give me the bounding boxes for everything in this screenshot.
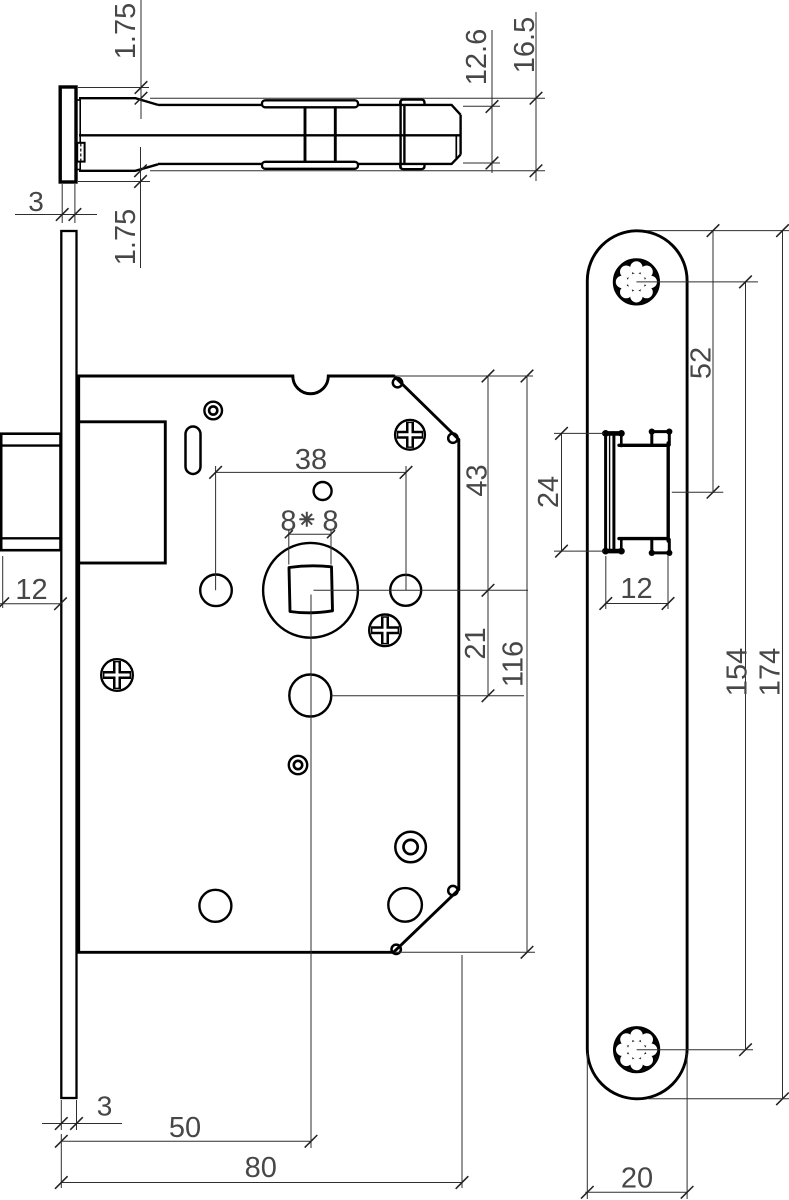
svg-text:12.6: 12.6 <box>461 29 493 85</box>
svg-text:116: 116 <box>497 641 529 687</box>
svg-text:154: 154 <box>721 648 753 696</box>
svg-text:20: 20 <box>621 1162 653 1194</box>
svg-text:12: 12 <box>620 573 652 605</box>
svg-text:174: 174 <box>754 648 786 696</box>
svg-text:16.5: 16.5 <box>509 17 541 73</box>
svg-text:3: 3 <box>97 1091 113 1122</box>
svg-text:38: 38 <box>295 444 327 476</box>
svg-text:21: 21 <box>460 627 492 659</box>
svg-text:12: 12 <box>15 574 47 606</box>
svg-text:1.75: 1.75 <box>110 3 142 59</box>
svg-text:80: 80 <box>245 1152 277 1184</box>
svg-text:52: 52 <box>685 347 717 379</box>
svg-text:3: 3 <box>28 186 44 217</box>
svg-text:50: 50 <box>169 1112 201 1144</box>
svg-text:43: 43 <box>461 464 493 496</box>
svg-text:24: 24 <box>533 476 565 508</box>
svg-text:1.75: 1.75 <box>110 209 142 265</box>
